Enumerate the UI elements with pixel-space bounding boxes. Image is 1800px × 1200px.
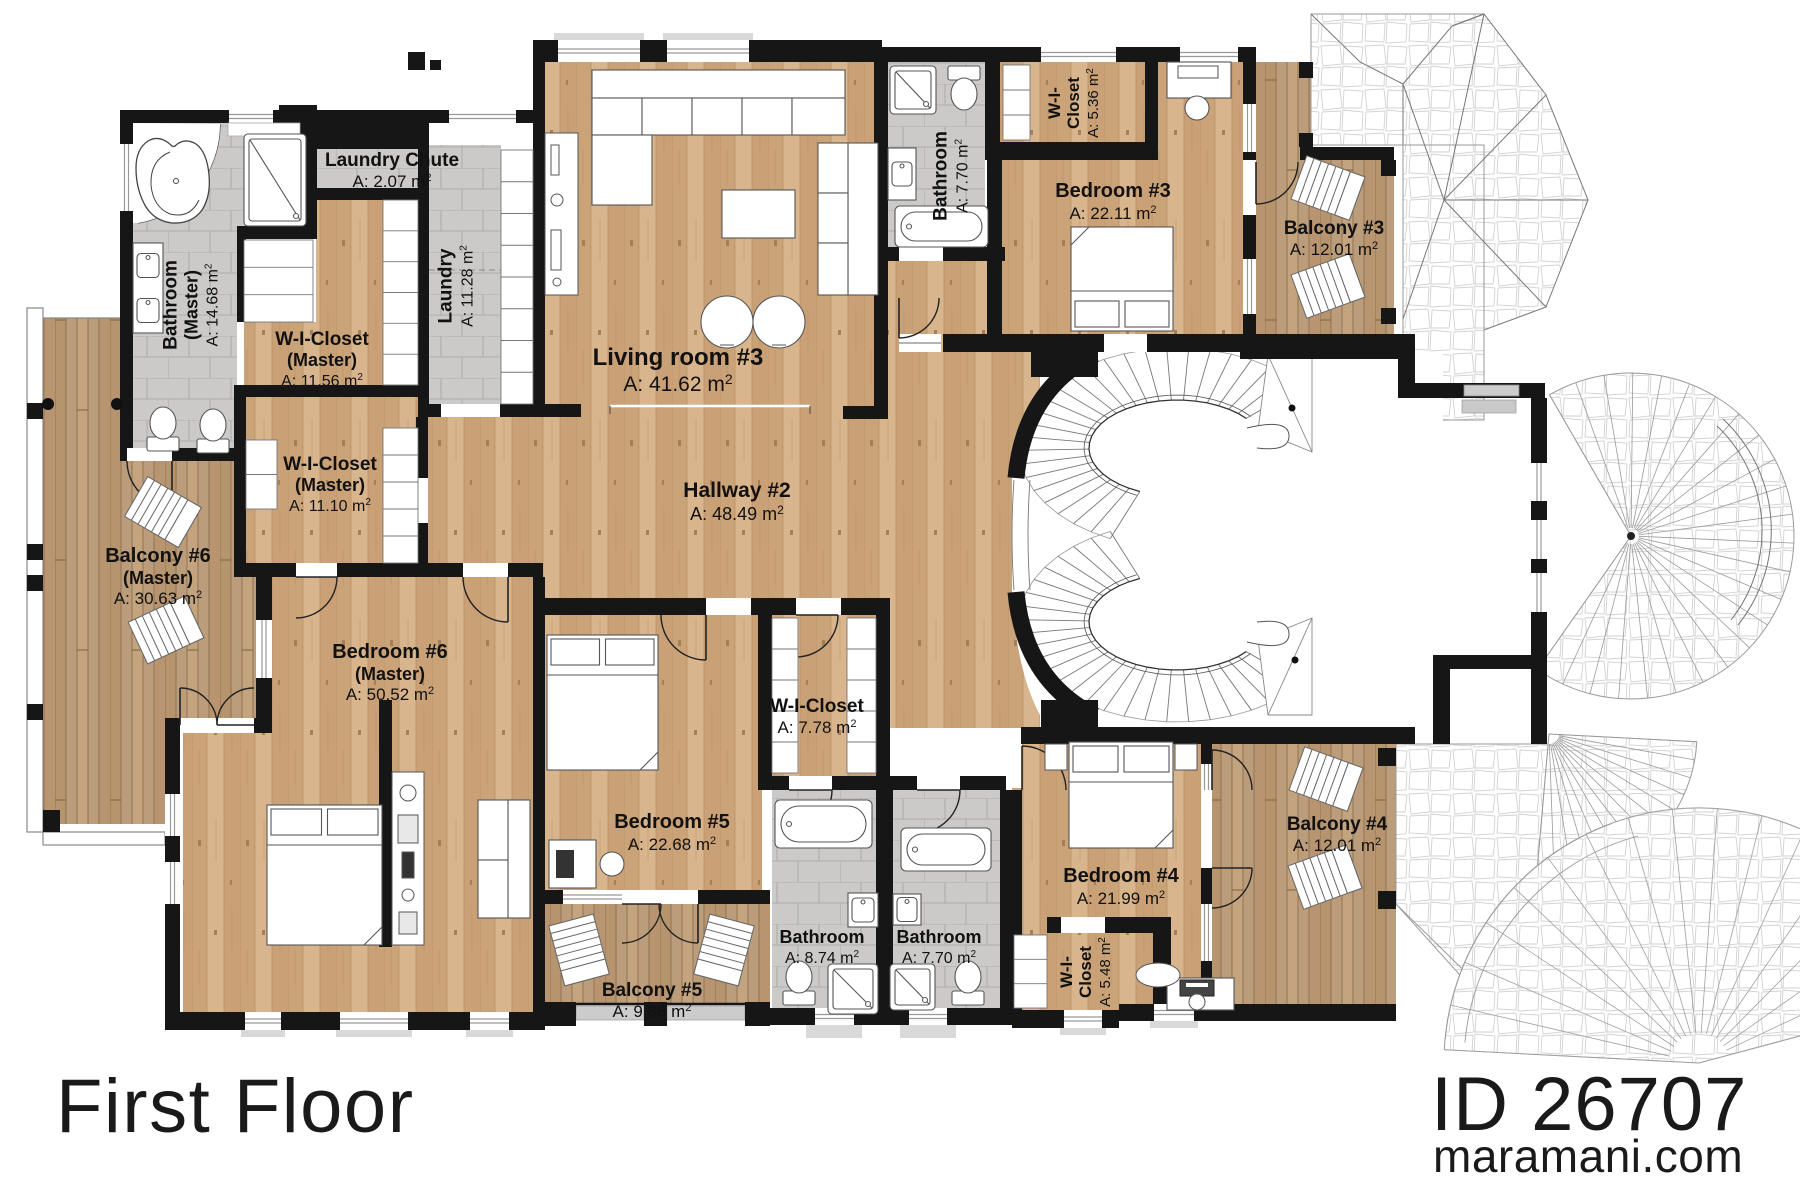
svg-text:W-I-Closet: W-I-Closet: [275, 329, 369, 350]
svg-text:Balcony #3: Balcony #3: [1284, 218, 1384, 239]
svg-text:Balcony #4: Balcony #4: [1287, 814, 1388, 835]
svg-text:A: 41.62 m2: A: 41.62 m2: [623, 371, 733, 396]
svg-text:A: 9.88 m2: A: 9.88 m2: [613, 1002, 692, 1021]
svg-text:Hallway #2: Hallway #2: [683, 479, 790, 502]
svg-text:A: 11.56 m2: A: 11.56 m2: [281, 372, 363, 390]
svg-text:Bathroom: Bathroom: [897, 927, 982, 947]
svg-text:A: 48.49 m2: A: 48.49 m2: [690, 503, 784, 524]
svg-text:W-I-Closet: W-I-Closet: [283, 454, 377, 475]
svg-text:Bathroom: Bathroom: [930, 131, 951, 221]
svg-text:A: 7.70 m2: A: 7.70 m2: [902, 949, 976, 967]
svg-text:W-I-Closet: W-I-Closet: [770, 696, 864, 717]
svg-text:A: 22.68 m2: A: 22.68 m2: [628, 835, 716, 854]
svg-text:A: 30.63 m2: A: 30.63 m2: [114, 589, 202, 608]
svg-text:A: 5.36 m2: A: 5.36 m2: [1085, 68, 1102, 138]
svg-text:Balcony #5: Balcony #5: [602, 980, 703, 1001]
svg-text:A: 21.99 m2: A: 21.99 m2: [1077, 889, 1165, 908]
svg-text:(Master): (Master): [181, 270, 201, 340]
svg-text:maramani.com: maramani.com: [1433, 1130, 1743, 1182]
svg-text:A: 12.01 m2: A: 12.01 m2: [1290, 240, 1378, 259]
svg-text:A: 22.11 m2: A: 22.11 m2: [1069, 204, 1156, 223]
svg-text:A: 5.48 m2: A: 5.48 m2: [1097, 937, 1114, 1007]
svg-text:A: 11.28 m2: A: 11.28 m2: [458, 245, 476, 327]
svg-text:Closet: Closet: [1064, 77, 1083, 129]
svg-text:Bedroom #4: Bedroom #4: [1063, 865, 1179, 887]
svg-text:Closet: Closet: [1076, 946, 1095, 998]
svg-text:Bedroom #3: Bedroom #3: [1055, 180, 1171, 202]
svg-text:Bedroom #6: Bedroom #6: [332, 641, 448, 663]
svg-text:W-I-: W-I-: [1045, 87, 1064, 119]
svg-text:(Master): (Master): [287, 350, 357, 370]
svg-text:Laundry Chute: Laundry Chute: [325, 150, 459, 171]
svg-text:Bedroom #5: Bedroom #5: [614, 811, 730, 833]
svg-text:Bathroom: Bathroom: [160, 260, 181, 350]
svg-text:Bathroom: Bathroom: [780, 927, 865, 947]
svg-text:Living room #3: Living room #3: [593, 344, 764, 371]
svg-text:A: 2.07 m2: A: 2.07 m2: [353, 172, 432, 191]
svg-text:First Floor: First Floor: [56, 1064, 415, 1149]
svg-text:A: 50.52 m2: A: 50.52 m2: [346, 685, 434, 704]
svg-text:A: 7.78 m2: A: 7.78 m2: [778, 718, 857, 737]
svg-text:A: 12.01 m2: A: 12.01 m2: [1293, 836, 1381, 855]
svg-text:(Master): (Master): [355, 664, 425, 684]
svg-text:A: 11.10 m2: A: 11.10 m2: [289, 497, 371, 515]
svg-text:A: 8.74 m2: A: 8.74 m2: [785, 949, 859, 967]
svg-text:(Master): (Master): [123, 568, 193, 588]
svg-text:Laundry: Laundry: [435, 248, 456, 323]
svg-text:A: 14.68 m2: A: 14.68 m2: [203, 263, 221, 346]
svg-text:(Master): (Master): [295, 475, 365, 495]
svg-text:Balcony #6: Balcony #6: [105, 545, 211, 567]
svg-text:A: 7.70 m2: A: 7.70 m2: [953, 139, 971, 213]
svg-text:W-I-: W-I-: [1057, 956, 1076, 988]
